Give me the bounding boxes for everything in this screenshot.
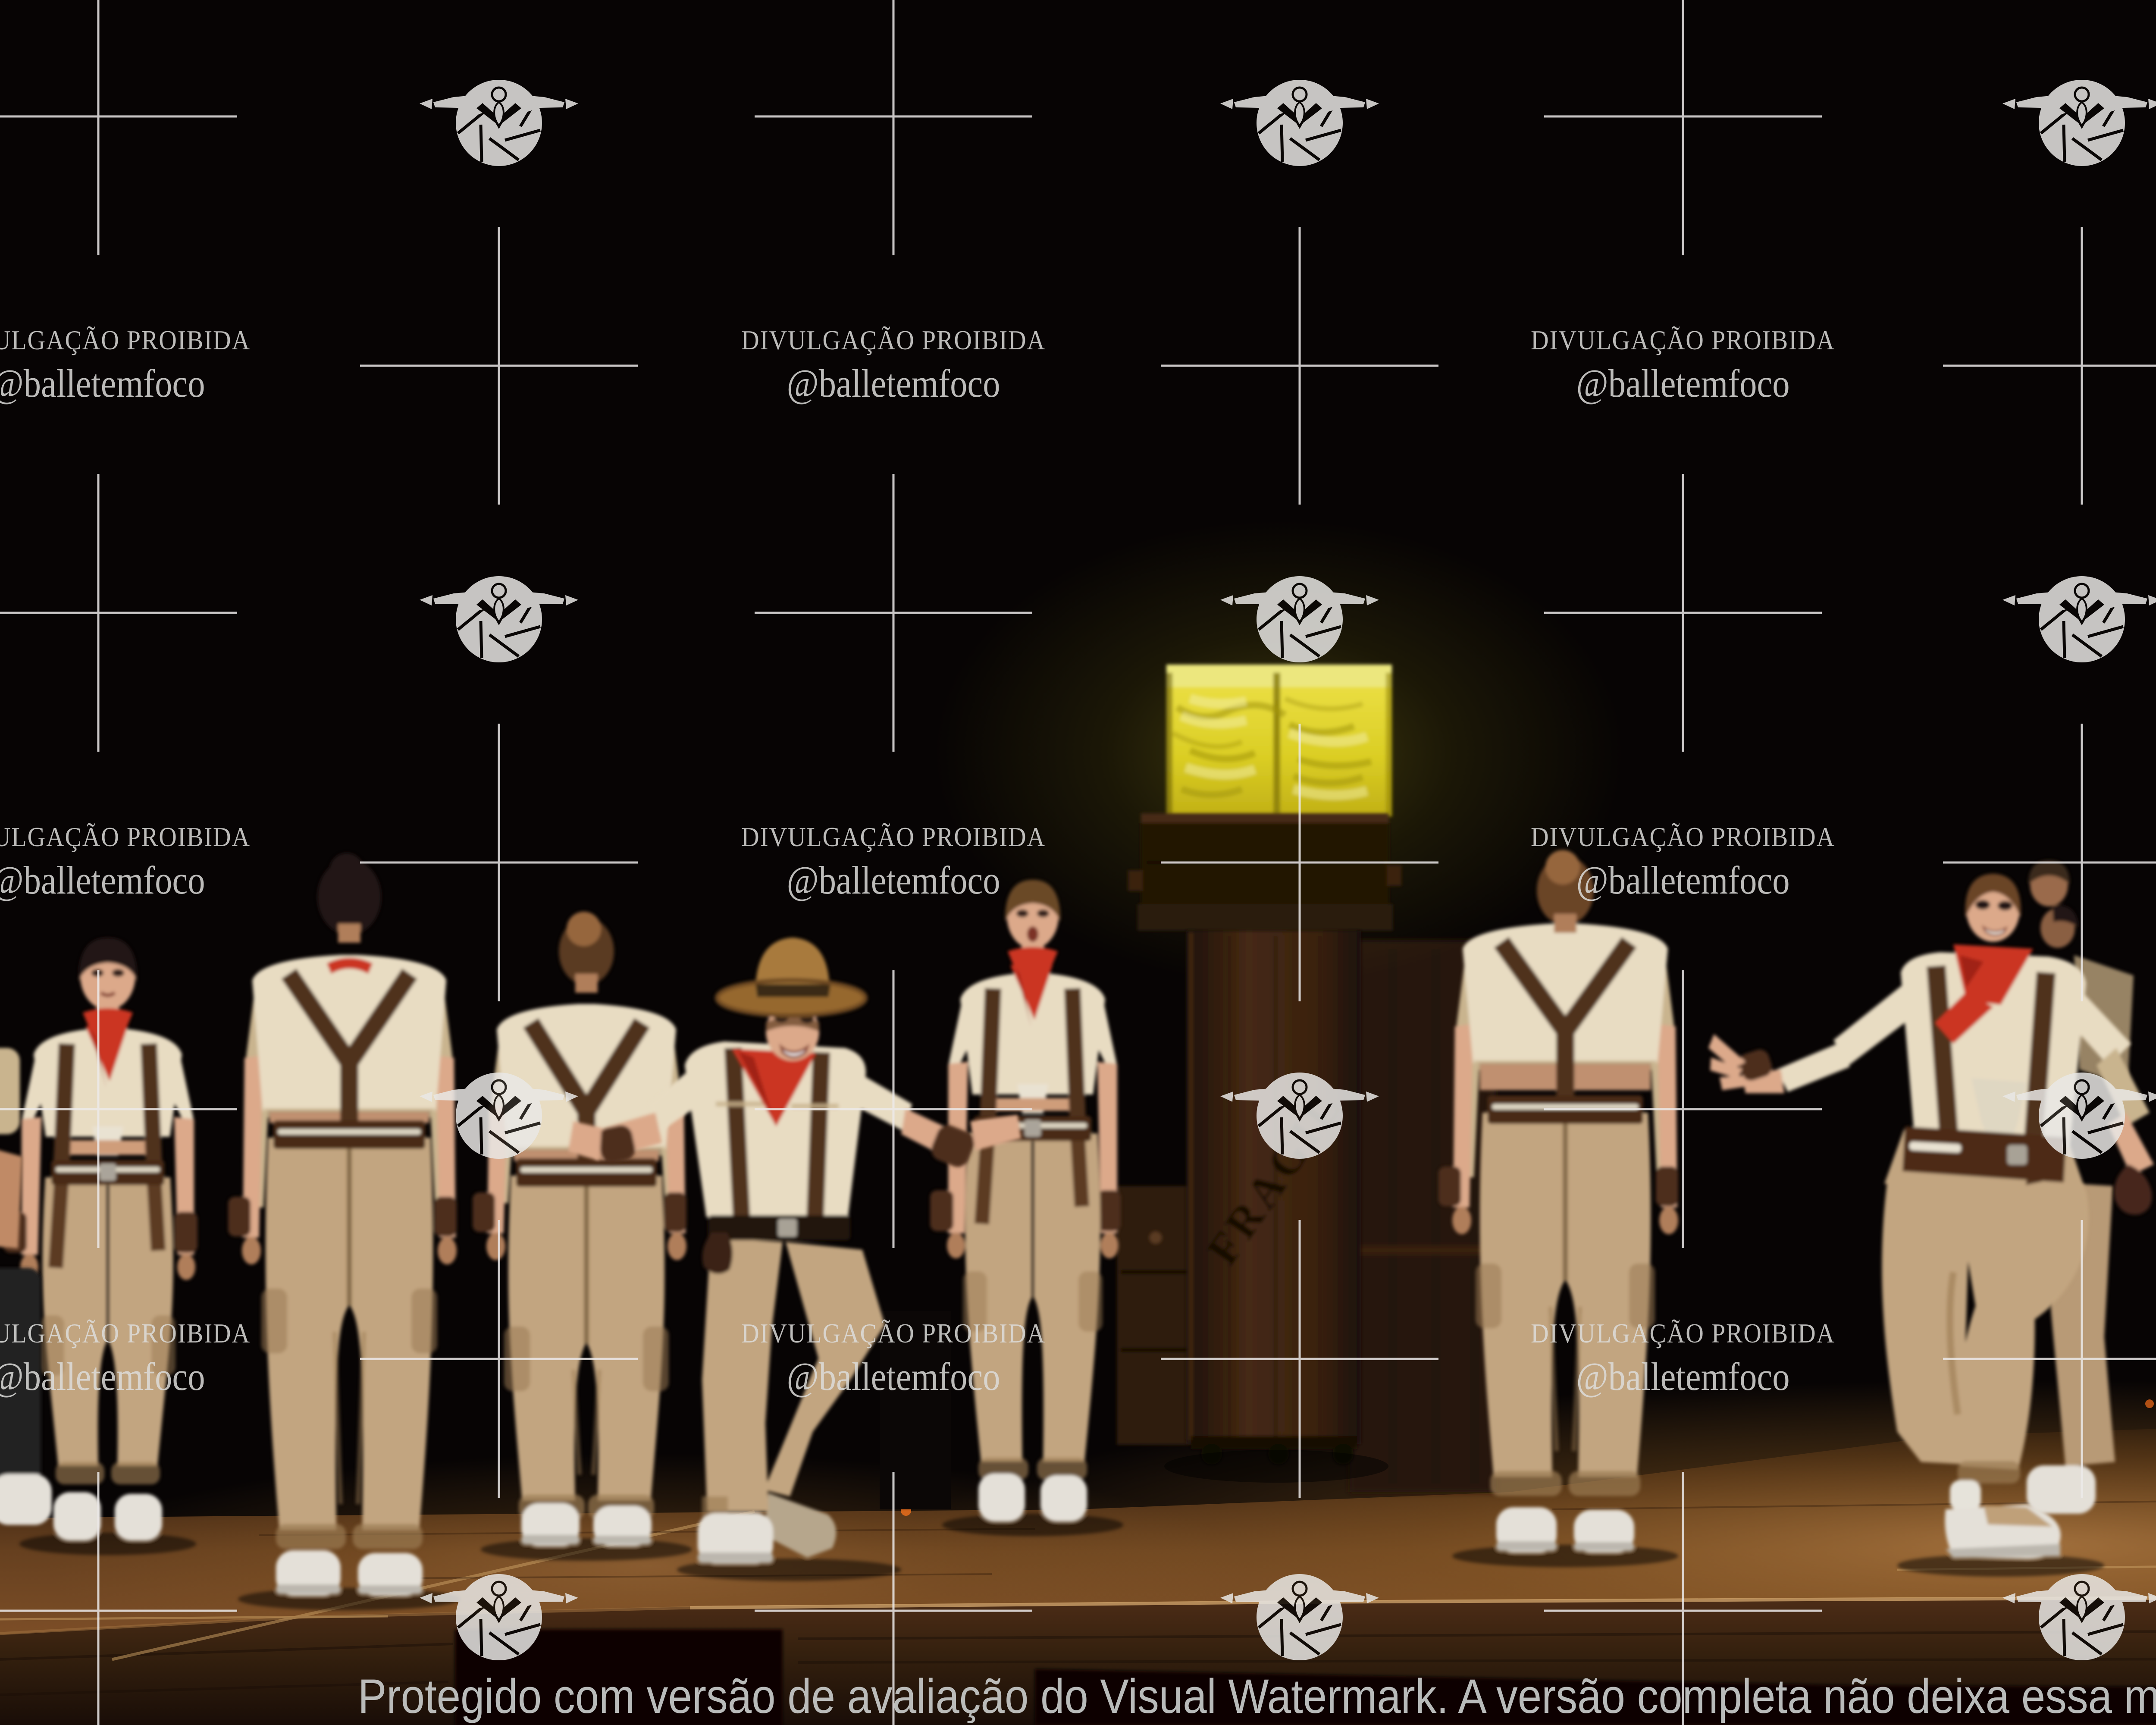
svg-text:@balletemfoco: @balletemfoco xyxy=(787,858,1000,902)
svg-text:@balletemfoco: @balletemfoco xyxy=(787,361,1000,405)
svg-text:@balletemfoco: @balletemfoco xyxy=(0,858,205,902)
svg-text:Protegido com versão de avalia: Protegido com versão de avaliação do Vis… xyxy=(358,1669,2156,1723)
svg-text:@balletemfoco: @balletemfoco xyxy=(0,1355,205,1399)
svg-text:DIVULGAÇÃO PROIBIDA: DIVULGAÇÃO PROIBIDA xyxy=(741,822,1046,852)
svg-text:DIVULGAÇÃO PROIBIDA: DIVULGAÇÃO PROIBIDA xyxy=(1531,822,1835,852)
svg-text:DIVULGAÇÃO PROIBIDA: DIVULGAÇÃO PROIBIDA xyxy=(741,325,1046,355)
svg-text:DIVULGAÇÃO PROIBIDA: DIVULGAÇÃO PROIBIDA xyxy=(1531,325,1835,355)
svg-text:@balletemfoco: @balletemfoco xyxy=(787,1355,1000,1399)
svg-text:DIVULGAÇÃO PROIBIDA: DIVULGAÇÃO PROIBIDA xyxy=(0,325,251,355)
svg-text:DIVULGAÇÃO PROIBIDA: DIVULGAÇÃO PROIBIDA xyxy=(0,1318,251,1349)
svg-text:@balletemfoco: @balletemfoco xyxy=(1576,1355,1790,1399)
svg-text:@balletemfoco: @balletemfoco xyxy=(0,361,205,405)
svg-text:@balletemfoco: @balletemfoco xyxy=(1576,361,1790,405)
svg-text:DIVULGAÇÃO PROIBIDA: DIVULGAÇÃO PROIBIDA xyxy=(0,822,251,852)
svg-text:@balletemfoco: @balletemfoco xyxy=(1576,858,1790,902)
svg-text:DIVULGAÇÃO PROIBIDA: DIVULGAÇÃO PROIBIDA xyxy=(1531,1318,1835,1349)
svg-text:DIVULGAÇÃO PROIBIDA: DIVULGAÇÃO PROIBIDA xyxy=(741,1318,1046,1349)
